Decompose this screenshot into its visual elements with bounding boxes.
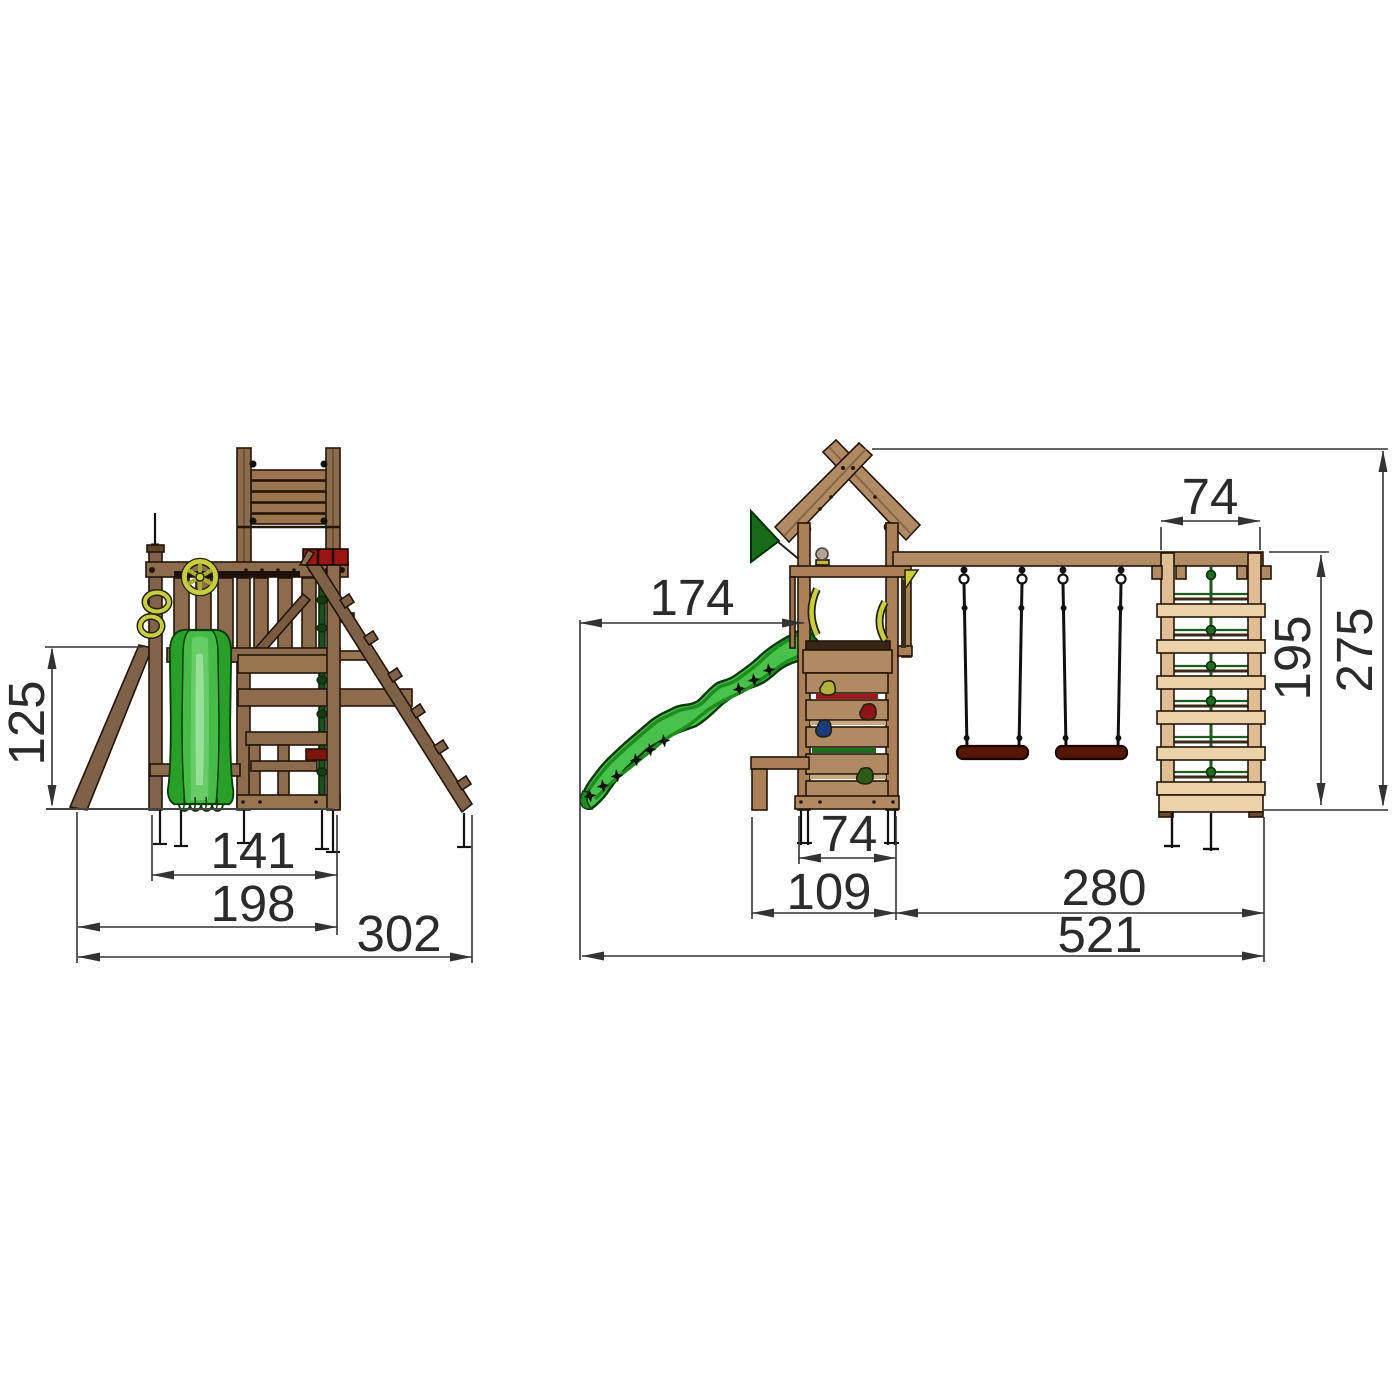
svg-text:521: 521 [1057,906,1142,963]
svg-text:74: 74 [1182,468,1239,525]
svg-text:195: 195 [1264,615,1321,700]
svg-text:174: 174 [649,569,734,626]
svg-text:109: 109 [786,863,871,920]
svg-text:275: 275 [1326,607,1383,692]
svg-text:198: 198 [210,875,295,932]
svg-text:74: 74 [821,805,878,862]
svg-text:302: 302 [356,905,441,962]
svg-text:125: 125 [0,680,55,765]
svg-text:141: 141 [210,822,295,879]
